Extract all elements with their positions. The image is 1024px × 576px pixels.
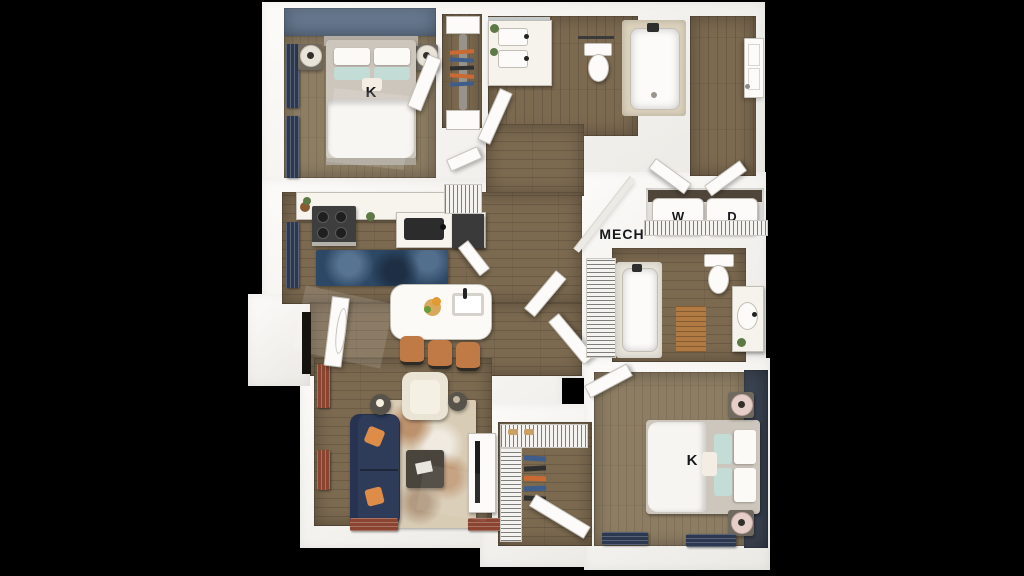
laundry-louver-doors [644, 220, 768, 236]
hanging-clothes [524, 476, 546, 482]
linen-shelves [586, 258, 616, 358]
closet-shelf-unit [500, 424, 588, 448]
burner [335, 227, 347, 239]
potted-plant [366, 212, 375, 221]
candle [376, 399, 384, 407]
hanging-clothes [524, 455, 546, 461]
tv [475, 441, 480, 503]
wall-left-step [248, 294, 310, 386]
burner [317, 227, 329, 239]
closet-shelf-unit [500, 448, 522, 542]
armchair-seat [410, 380, 440, 414]
bed-footboard [326, 158, 416, 165]
entry-door-panel [748, 44, 760, 66]
faucet [752, 312, 757, 317]
bar-stool [428, 340, 452, 369]
tub-drain [651, 92, 657, 98]
closet-shelf [446, 110, 480, 130]
tub-faucet [632, 264, 642, 272]
faucet [524, 56, 529, 61]
potted-plant [737, 338, 746, 347]
tv-console [468, 433, 496, 513]
hallway-floor [486, 124, 584, 196]
duvet [328, 100, 414, 158]
towel-bar [578, 36, 614, 39]
floorplan-render: K W D MECH [0, 0, 1024, 576]
burner [335, 211, 347, 223]
faucet [440, 224, 446, 230]
potted-plant [490, 48, 498, 56]
shoes [508, 429, 518, 435]
hanging-clothes [524, 486, 546, 492]
island-sink [452, 293, 484, 316]
stove-handle [312, 242, 356, 246]
door-knob [745, 84, 750, 89]
potted-plant [490, 24, 499, 33]
pillow [374, 48, 410, 65]
hanging-clothes [450, 66, 474, 71]
shoes [524, 429, 534, 435]
wood-bath-mat [676, 306, 706, 352]
tub-faucet [647, 23, 659, 32]
closet-rod [459, 34, 467, 110]
toilet-bowl [588, 54, 609, 82]
curtain [350, 518, 398, 531]
pillow [734, 468, 756, 502]
curtain [286, 222, 299, 288]
curtain [686, 534, 736, 547]
lamp-finial [738, 519, 745, 526]
curtain [286, 116, 299, 178]
fruit-bowl [432, 297, 441, 306]
mech-room-label: MECH [584, 226, 660, 242]
door-recess [302, 312, 311, 374]
bed-size-label-1: K [326, 84, 416, 101]
pillow [734, 430, 756, 464]
lamp-finial [738, 401, 745, 408]
curtain [602, 532, 648, 545]
sofa-cushion-seam [360, 469, 398, 471]
curtain [317, 450, 330, 490]
pantry-louver-door [444, 184, 482, 214]
pillow [334, 48, 370, 65]
closet-shelf [446, 16, 480, 34]
fruit [424, 306, 431, 313]
bed-size-label-2: K [664, 452, 720, 469]
faucet [524, 34, 529, 39]
curtain [317, 364, 330, 408]
island-faucet [463, 288, 467, 299]
decor-bowl [453, 396, 460, 403]
bathtub [622, 268, 658, 352]
bar-stool [400, 336, 424, 365]
kitchen-runner-rug [316, 250, 448, 286]
bedroom1-accent-wall [284, 8, 436, 38]
kitchen-sink [404, 218, 444, 240]
toilet-bowl [708, 265, 729, 294]
bar-stool [456, 342, 480, 371]
lamp-finial [307, 52, 314, 59]
burner [317, 211, 329, 223]
potted-plant [303, 197, 311, 205]
